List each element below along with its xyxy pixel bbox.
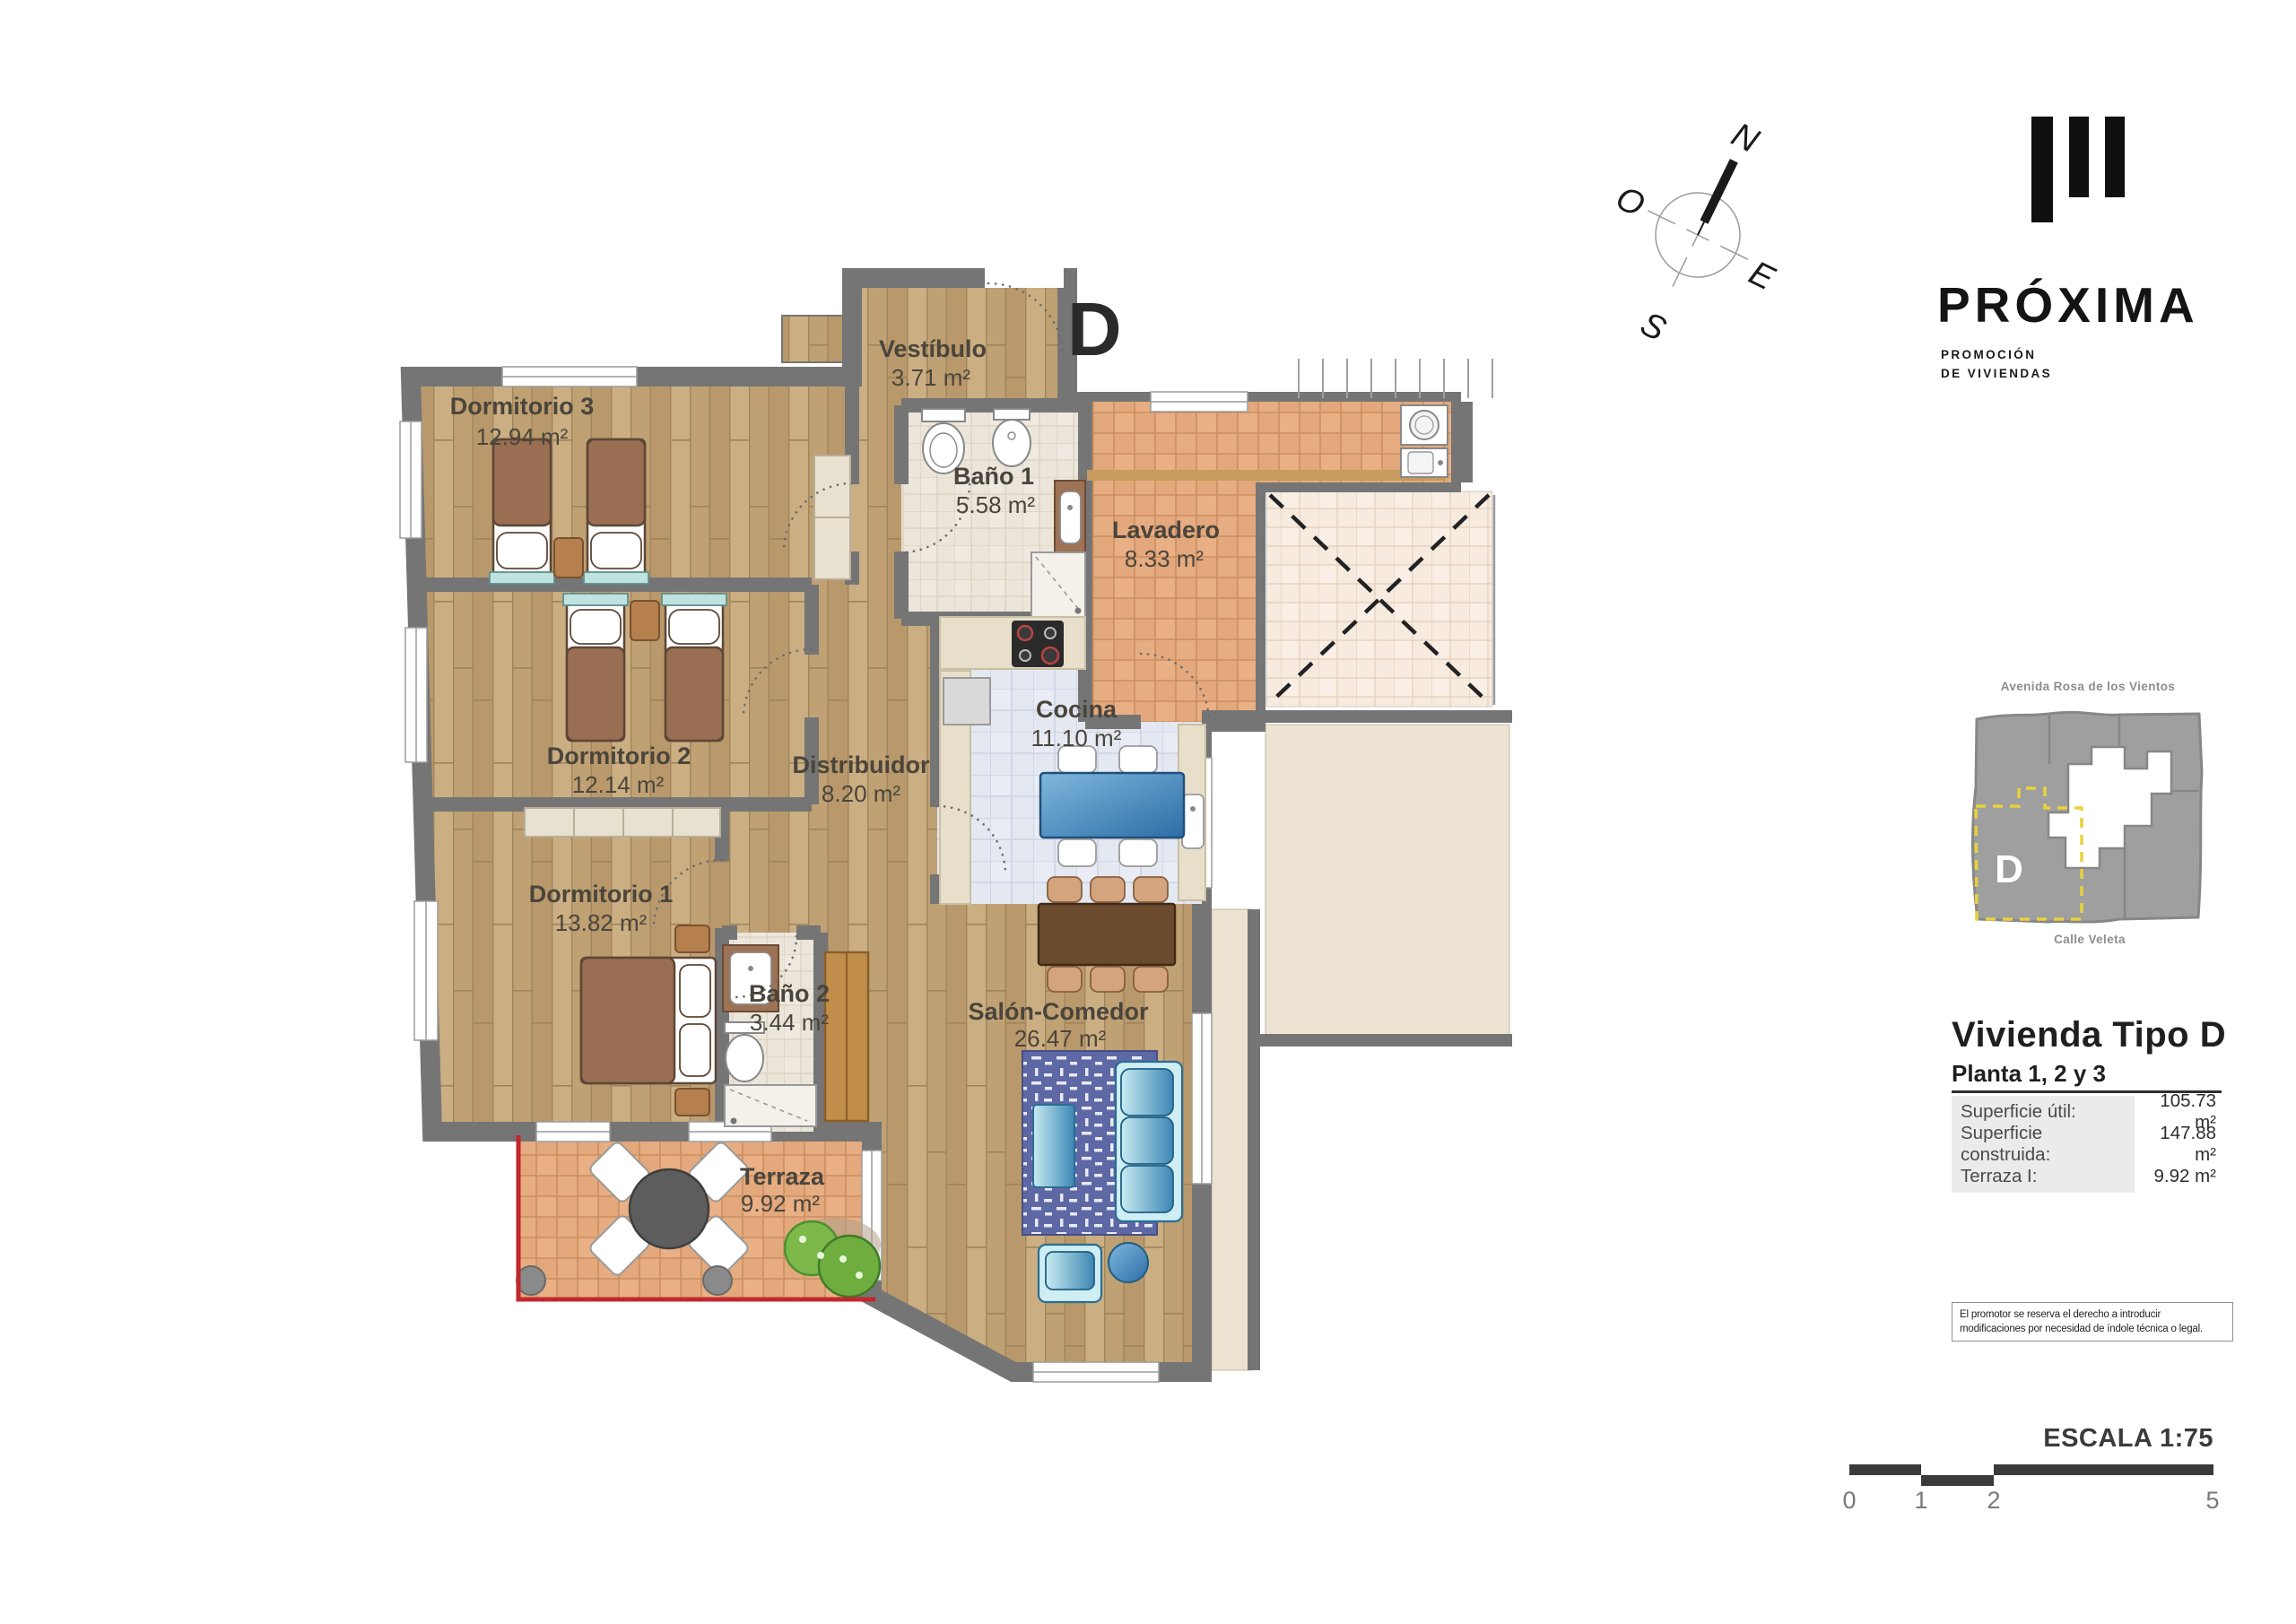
room-label-cocina-name: Cocina xyxy=(1036,696,1118,723)
armchair-icon xyxy=(1039,1245,1101,1302)
room-label-vestibulo-area: 3.71 m² xyxy=(891,364,970,391)
coffee-table-icon xyxy=(1033,1105,1074,1187)
room-label-dormitorio3-area: 12.94 m² xyxy=(476,423,569,450)
room-label-dormitorio3-name: Dormitorio 3 xyxy=(450,393,595,420)
surface-value: 9.92 m² xyxy=(2135,1166,2222,1187)
room-label-bano1-area: 5.58 m² xyxy=(956,491,1035,518)
proxima-logo-icon xyxy=(2031,117,2125,222)
scale-tick: 5 xyxy=(2205,1487,2219,1515)
minimap-street-bottom: Calle Veleta xyxy=(1955,933,2224,946)
surface-table: Superficie útil: 105.73 m² Superficie co… xyxy=(1952,1096,2222,1193)
laundry-counter xyxy=(1087,470,1446,481)
compass-n: N xyxy=(1726,116,1765,161)
scale-tick: 2 xyxy=(1987,1487,2000,1515)
shower-icon xyxy=(725,1085,816,1126)
room-label-cocina-area: 11.10 m² xyxy=(1031,725,1122,751)
side-table-icon xyxy=(1109,1243,1148,1282)
wall-stub xyxy=(1451,402,1473,482)
table-row: Terraza I: 9.92 m² xyxy=(1952,1160,2222,1193)
surface-value: 147.88 m² xyxy=(2135,1123,2222,1166)
brand-tagline-line1: PROMOCIÓN xyxy=(1941,346,2052,365)
room-label-dormitorio1-name: Dormitorio 1 xyxy=(529,881,674,908)
room-label-salon-area: 26.47 m² xyxy=(1014,1025,1107,1052)
hob-icon xyxy=(1012,621,1064,667)
sink-icon xyxy=(1055,481,1085,556)
brand-name: PRÓXIMA xyxy=(1937,276,2199,334)
room-label-terraza-area: 9.92 m² xyxy=(741,1190,820,1217)
room-label-terraza-name: Terraza xyxy=(740,1163,825,1190)
sink-icon xyxy=(1182,795,1204,848)
wardrobe-icon xyxy=(825,952,868,1121)
room-label-salon-name: Salón-Comedor xyxy=(968,998,1149,1025)
dining-table-icon xyxy=(1039,877,1175,992)
table-row: Superficie construida: 147.88 m² xyxy=(1952,1128,2222,1160)
compass-e: E xyxy=(1744,254,1781,298)
fridge-icon xyxy=(944,678,990,725)
minimap-street-top: Avenida Rosa de los Vientos xyxy=(1953,680,2222,693)
brand-tagline: PROMOCIÓN DE VIVIENDAS xyxy=(1941,346,2052,384)
room-label-dormitorio1-area: 13.82 m² xyxy=(555,909,648,936)
room-label-vestibulo-name: Vestíbulo xyxy=(879,335,987,362)
room-label-lavadero-area: 8.33 m² xyxy=(1125,545,1204,572)
washer-icon xyxy=(1401,405,1448,445)
terrace-post xyxy=(517,1266,545,1295)
scale-label: ESCALA 1:75 xyxy=(1944,1424,2213,1454)
room-label-bano2-name: Baño 2 xyxy=(749,980,830,1007)
scale-tick: 0 xyxy=(1842,1487,1856,1515)
room-label-bano1-name: Baño 1 xyxy=(953,463,1034,490)
terrace-post xyxy=(703,1266,732,1295)
room-label-dormitorio2-area: 12.14 m² xyxy=(572,771,665,798)
surface-label: Superficie construida: xyxy=(1952,1128,2135,1160)
location-minimap: D xyxy=(1972,712,2202,922)
floor-plan: Dormitorio 3 12.94 m² Vestíbulo 3.71 m² … xyxy=(0,0,2296,1624)
floorplan-sheet: Dormitorio 3 12.94 m² Vestíbulo 3.71 m² … xyxy=(0,0,2296,1624)
compass-o: O xyxy=(1610,179,1650,225)
unit-title: Vivienda Tipo D xyxy=(1952,1015,2226,1055)
legal-disclaimer: El promotor se reserva el derecho a intr… xyxy=(1952,1302,2233,1342)
surface-label: Terraza I: xyxy=(1952,1160,2135,1193)
unit-subtitle: Planta 1, 2 y 3 xyxy=(1952,1060,2106,1088)
compass-rose: N O E S xyxy=(1565,83,1831,382)
room-label-distribuidor-area: 8.20 m² xyxy=(822,780,900,807)
unit-letter: D xyxy=(1067,287,1122,371)
room-label-dormitorio2-name: Dormitorio 2 xyxy=(547,743,691,769)
minimap-unit-letter: D xyxy=(1995,847,2023,891)
brand-tagline-line2: DE VIVIENDAS xyxy=(1941,365,2052,384)
patio xyxy=(1266,491,1494,707)
sofa-icon xyxy=(1116,1062,1182,1221)
sink-icon xyxy=(1401,448,1448,477)
room-label-lavadero-name: Lavadero xyxy=(1112,517,1220,543)
shower-icon xyxy=(1031,552,1085,617)
scale-tick: 1 xyxy=(1914,1487,1927,1515)
room-label-bano2-area: 3.44 m² xyxy=(750,1009,829,1036)
room-label-distribuidor-name: Distribuidor xyxy=(793,751,930,778)
compass-s: S xyxy=(1634,305,1671,349)
scale-bar xyxy=(1849,1464,2213,1486)
bidet-icon xyxy=(993,409,1031,466)
